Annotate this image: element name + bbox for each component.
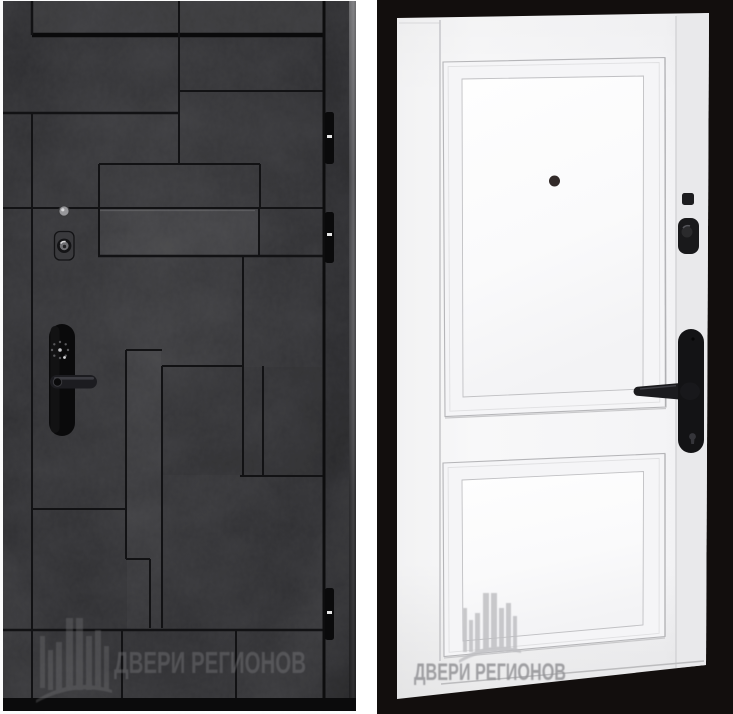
svg-text:ДВЕРИ РЕГИОНОВ: ДВЕРИ РЕГИОНОВ	[114, 645, 306, 680]
svg-text:ДВЕРИ РЕГИОНОВ: ДВЕРИ РЕГИОНОВ	[414, 659, 566, 686]
